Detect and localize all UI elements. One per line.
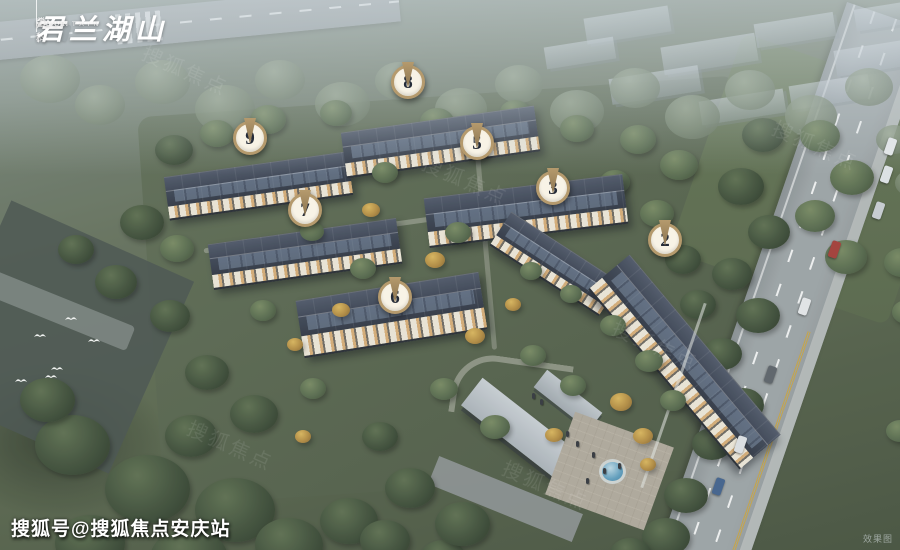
project-tagline: LAKE MOUNTAIN — [36, 19, 54, 29]
tiled-watermark: 搜狐焦点 — [183, 413, 279, 477]
tiled-watermark: 搜狐焦点 — [608, 313, 704, 377]
tagline-mountain: MOUNTAIN — [36, 21, 102, 28]
sohu-watermark: 搜狐号@搜狐焦点安庆站 — [11, 514, 231, 541]
tiled-watermark: 搜狐焦点 — [768, 113, 864, 177]
aerial-rendering: 搜狐焦点搜狐焦点搜狐焦点搜狐焦点搜狐焦点搜狐焦点 8 # 9 # 5 # 3 #… — [0, 0, 900, 550]
tiled-watermark: 搜狐焦点 — [418, 148, 514, 212]
tiled-watermark: 搜狐焦点 — [498, 453, 594, 517]
tiled-watermarks: 搜狐焦点搜狐焦点搜狐焦点搜狐焦点搜狐焦点搜狐焦点 — [0, 0, 900, 550]
tiled-watermark: 搜狐焦点 — [138, 38, 234, 102]
rendering-disclaimer: 效果图 — [863, 532, 893, 545]
